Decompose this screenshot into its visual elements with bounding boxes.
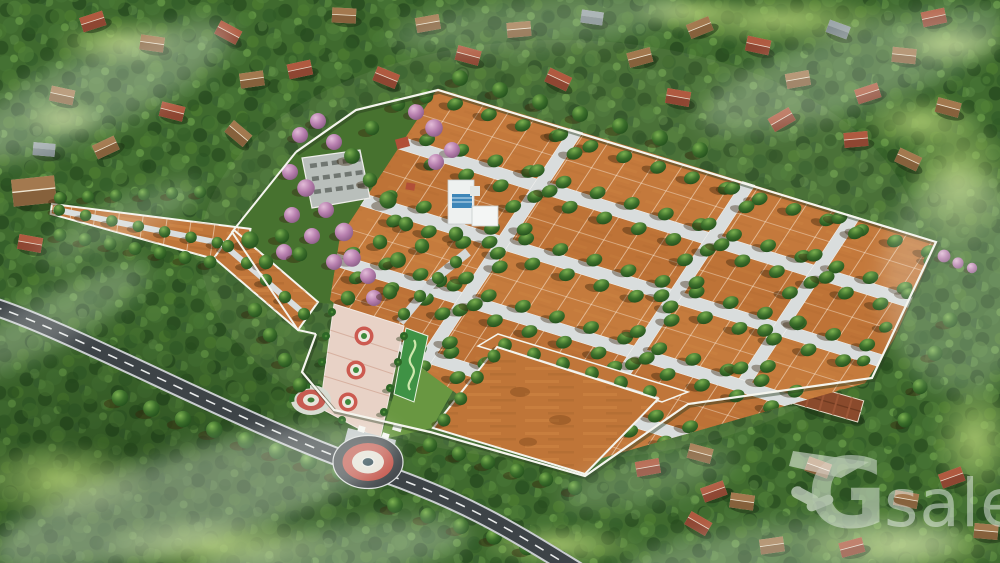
clubhouse-glass-facade (452, 194, 472, 208)
parking-court (302, 150, 370, 208)
aerial-render: G sale (0, 0, 1000, 563)
watermark-text: sale (884, 465, 1000, 542)
aerial-render-canvas: G sale (0, 0, 1000, 563)
watermark-g: G (807, 437, 887, 550)
